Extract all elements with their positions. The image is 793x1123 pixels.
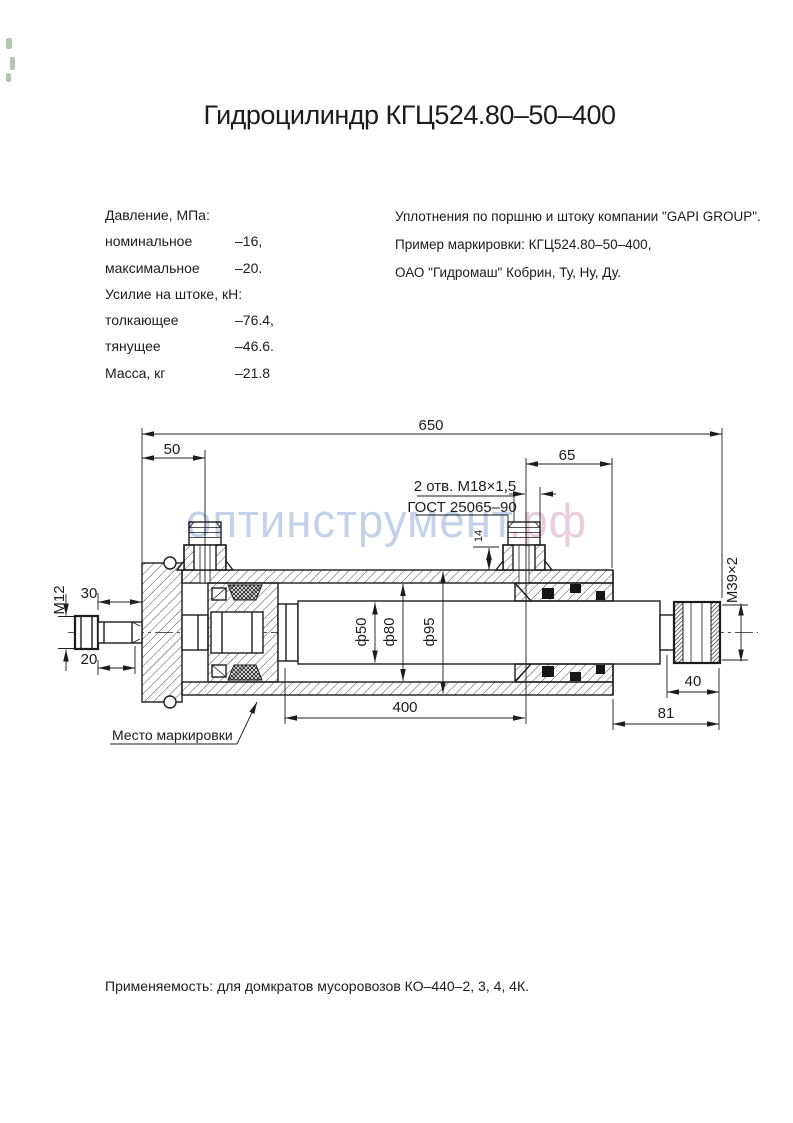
piston-assembly [182, 583, 298, 682]
scan-artifact [10, 57, 15, 70]
dim-outer-diameter-label: ф95 [421, 617, 438, 646]
dim-port-to-end-label: 65 [559, 447, 576, 464]
dim-rod-end-length-label: 81 [658, 705, 675, 722]
dim-ports-callout-line2: ГОСТ 25065–90 [407, 499, 516, 516]
dim-overall-label: 650 [418, 417, 443, 434]
dim-thread-length-label: 40 [685, 673, 702, 690]
cylinder-technical-drawing: 650 50 65 2 отв. М18×1,5 ГОСТ 25065–90 1… [0, 0, 793, 1123]
dim-rod-thread-label: М39×2 [724, 557, 741, 603]
marking-note-label: Место маркировки [112, 727, 233, 743]
rod-threaded-end [674, 602, 720, 663]
stud-m12 [75, 616, 142, 649]
dim-rod-diameter-label: ф50 [353, 617, 370, 646]
dim-port-offset-label: 50 [164, 441, 181, 458]
dim-stroke-label: 400 [392, 699, 417, 716]
scan-artifact [6, 73, 11, 82]
dim-boss-height-label: 14 [473, 530, 485, 542]
dim-stud-thread-label: М12 [51, 585, 68, 614]
scan-artifact [6, 38, 12, 49]
dim-bore-diameter-label: ф80 [381, 617, 398, 646]
dim-stud-len-bottom-label: 20 [81, 651, 98, 668]
dim-stud-len-top-label: 30 [81, 585, 98, 602]
rear-cap [142, 557, 182, 708]
port-bore-right [519, 571, 530, 583]
dim-ports-callout-line1: 2 отв. М18×1,5 [414, 478, 517, 495]
cylinder-body [68, 522, 758, 708]
